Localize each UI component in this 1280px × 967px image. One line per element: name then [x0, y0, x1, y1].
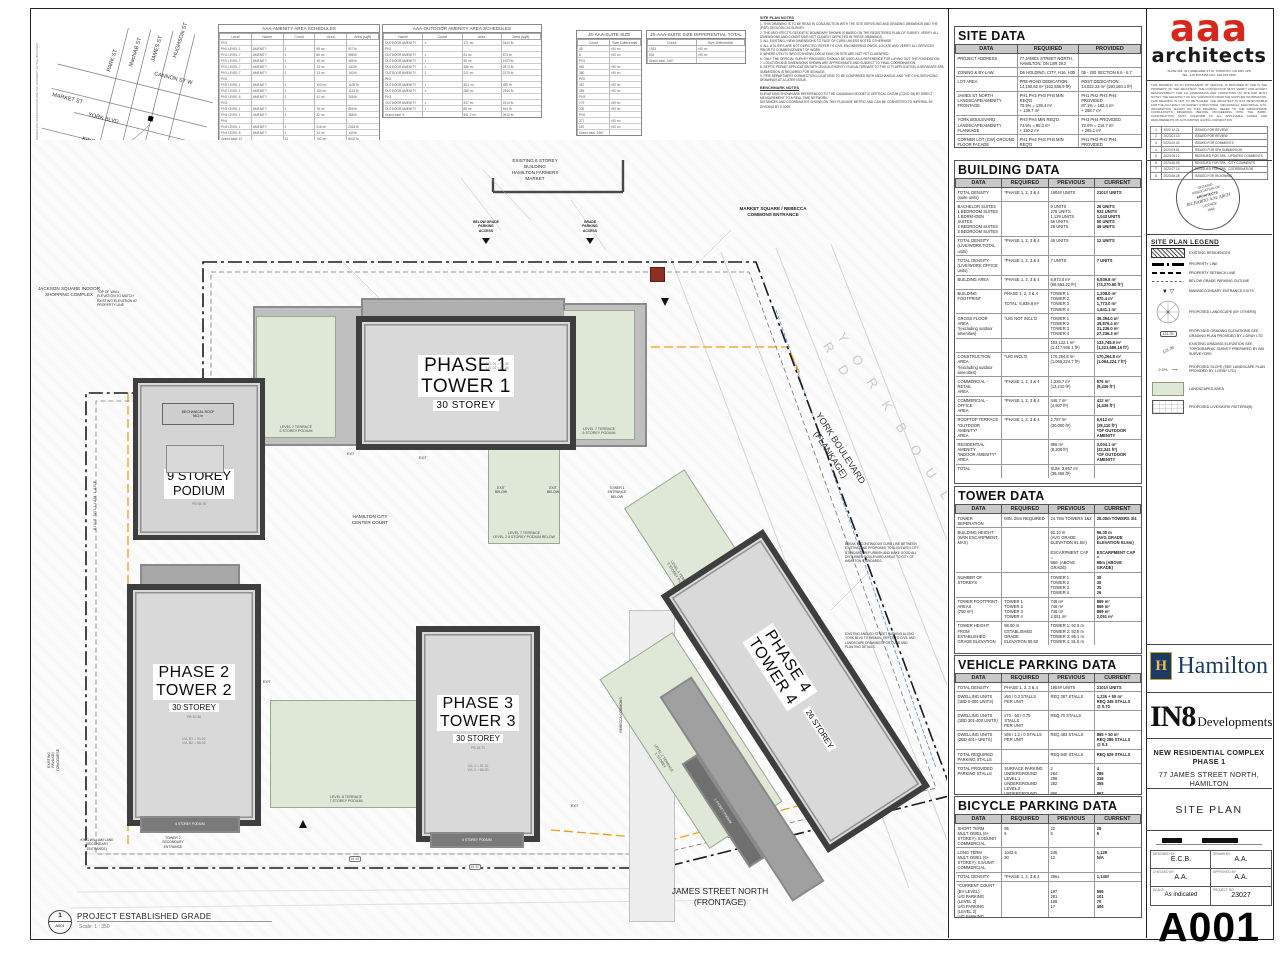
- seal-line: 7946: [1207, 206, 1215, 212]
- podium-strip-label: 6 STOREY PODIUM: [175, 822, 204, 826]
- project-no-value: 23027: [1213, 892, 1269, 899]
- plan-note-right-2: EXISTING ANGLED STREET PARKING ALONG YOR…: [845, 632, 923, 649]
- legend-label: MAIN/SECONDARY ENTRANCE EXITS: [1189, 289, 1268, 294]
- terrace-central: LEVEL 8 TERRACE 7 STOREY PODIUM: [270, 700, 422, 808]
- building-data-table: DATAREQUIREDPREVIOUSCURRENTTOTAL DENSITY…: [955, 178, 1141, 478]
- firm-disclaimer: THIS DRAWING, AS AN INSTRUMENT OF SERVIC…: [1151, 84, 1267, 123]
- hamilton-emblem-icon: H: [1150, 652, 1172, 680]
- street-james: JAMES ST: [150, 35, 164, 63]
- tower2-podium-north: [140, 564, 240, 586]
- tower1-building: PHASE 1 TOWER 1 30 STOREY: [356, 316, 576, 450]
- market-square-label: MARKET SQUARE / REBECCA COMMONS ENTRANCE: [733, 206, 813, 218]
- top-of-wall-note: TOP OF WALL ELEVATION TO MATCH EXISTING …: [97, 290, 169, 308]
- setback-line-swatch: [1151, 272, 1185, 274]
- tower2-levels-note: LVL B1 = 91.02 LVL B2 = 86.02: [182, 737, 205, 746]
- benchmark-notes-lines: ELEVATIONS SHOWN ARE REFERENCED TO THE C…: [760, 92, 944, 109]
- phase2-label: PHASE 2 TOWER 2: [153, 664, 235, 700]
- king-william-lane-label: KING WILLIAM LANE: [93, 470, 97, 540]
- drawn-by-value: A.A.: [1213, 856, 1269, 863]
- legend-label: PROPOSED GRADING ELEVATIONS SEE GRADING …: [1189, 329, 1268, 338]
- phase2-storey-label: 30 STOREY: [169, 703, 219, 712]
- project-no-cell: PROJECT NO: 23027: [1210, 886, 1272, 906]
- site-plan-legend: SITE PLAN LEGEND EXISTING RESIDENCES PRO…: [1151, 239, 1268, 418]
- scale-cell: SCALE: As indicated: [1150, 886, 1212, 906]
- tower3-building: PHASE 3 TOWER 3 30 STOREY PB 16.71 LVL 1…: [416, 626, 540, 842]
- jackson-square-label: JACKSON SQUARE INDOOR SHOPPING COMPLEX: [33, 286, 105, 298]
- callout-number: 1: [49, 911, 71, 922]
- scale-bar-segment: [1162, 838, 1182, 843]
- terrace-label: LEVEL 7 TERRACE 6 STOREY PODIUM: [279, 425, 312, 433]
- phase4-storey-label: 26 STOREY: [803, 705, 838, 752]
- street-macnab: MacNAB ST: [128, 36, 143, 67]
- below-grade-parking-label: BELOW GRADE PARKING ACCESS: [465, 220, 507, 233]
- exit-label: EXIT: [419, 456, 427, 460]
- street-park: PARK ST: [106, 48, 119, 72]
- approved-by-cell: APPROVED BY: A.A.: [1210, 868, 1272, 888]
- suite-diff-title: JS-AAA-SUITE SIZE DIFFERENTIAL TOTAL: [647, 31, 745, 39]
- suite-size-title: JS-AAA-SUITE SIZE: [577, 31, 641, 39]
- vehicle-parking-table: DATAREQUIREDPREVIOUSCURRENTTOTAL DENSITY…: [955, 673, 1141, 795]
- terrace-label: LEVEL 7 TERRACE 6 STOREY PODIUM: [582, 427, 615, 435]
- terrace-west-of-tower1: LEVEL 7 TERRACE 6 STOREY PODIUM: [256, 316, 336, 438]
- aaa-logo: aaa: [1150, 14, 1268, 44]
- farmers-market-label: EXISTING 6 STOREY BUILDING HAMILTON FARM…: [493, 158, 577, 182]
- tower-data-table: DATAREQUIREDPREVIOUSCURRENTTOWER SEPERAT…: [955, 504, 1141, 645]
- tower1-entrance-label: TOWER 1 ENTRANCE BELOW: [597, 486, 637, 499]
- suite-size-schedule: JS-AAA-SUITE SIZE CountSize Differential…: [576, 30, 642, 136]
- designed-by-cell: DESIGNED BY: E.C.B.: [1150, 850, 1212, 870]
- exit-below-label: EXIT BELOW: [487, 486, 515, 495]
- sheet-title: SITE PLAN: [1150, 804, 1268, 816]
- grade-tag: 91.45: [349, 856, 361, 862]
- tower2-building: PHASE 2 TOWER 2 30 STOREY PB 10.36 LVL B…: [127, 584, 261, 826]
- detail-callout: 1 A001: [48, 910, 72, 934]
- tower3-podium-south: 6 STOREY PODIUM: [430, 832, 524, 848]
- building-data-section: BUILDING DATA DATAREQUIREDPREVIOUSCURREN…: [954, 160, 1142, 484]
- legend-label: PROPOSED SLOPE (SEE LANDSCAPE PLAN PROVI…: [1189, 365, 1268, 374]
- street-york: YORK BLVD: [88, 112, 120, 125]
- firm-address: SUITE 501, 317 ADELAIDE ST W, TORONTO, O…: [1150, 69, 1268, 78]
- hamilton-logo-block: H Hamilton: [1150, 652, 1268, 680]
- outdoor-amenity-schedule-title: AAA-OUTDOOR AMENITY AREA SCHEDULES: [383, 25, 541, 33]
- podium-grade: PB 98.76: [192, 502, 206, 506]
- legend-title: SITE PLAN LEGEND: [1151, 239, 1268, 246]
- podium-strip-label: 6 STOREY PODIUM: [462, 838, 491, 842]
- approved-by-value: A.A.: [1213, 874, 1269, 881]
- entrance-exits-icon: ▼ ▽: [1151, 288, 1185, 295]
- amenity-schedule-title: AAA-AMENITY AREA SCHEDULES: [219, 25, 379, 33]
- existing-residences-swatch: [1151, 248, 1185, 258]
- parking-access-arrow: [586, 238, 594, 244]
- site-plan-notes-lines: 1. THIS DRAWING IS TO BE READ IN CONJUNC…: [760, 22, 944, 82]
- legend-label: PROPOSED LANDSCAPE (BY OTHERS): [1189, 310, 1268, 315]
- data-tables-column: SITE DATA DATAREQUIREDPROVIDEDPROJECT AD…: [948, 8, 1146, 938]
- legend-label: BELOW GRADE PARKING OUTLINE: [1189, 279, 1268, 284]
- plan-note-right-1: BREAK IN CONTINUOUS CURB LINE BETWEEN EX…: [845, 542, 923, 564]
- parking-outline-swatch: [1151, 281, 1185, 282]
- slope-icon: 2.0% ⟶: [1151, 360, 1185, 378]
- rebecca-commons-label: REBECCA COMMONS: [619, 680, 623, 750]
- sheet-number: A001: [1146, 904, 1272, 951]
- amenity-schedule-table: LevelNameCountAreaArea (sqft)PH1PH1 LEVE…: [219, 33, 379, 141]
- firm-logo-block: aaa architects SUITE 501, 317 ADELAIDE S…: [1150, 14, 1268, 77]
- phase3-storey-label: 30 STOREY: [453, 734, 503, 743]
- utility-block: [650, 267, 665, 282]
- james-street-label: JAMES STREET NORTH (FRONTAGE): [640, 886, 800, 908]
- checked-by-cell: CHECKED BY: A.A.: [1150, 868, 1212, 888]
- bicycle-parking-section: BICYCLE PARKING DATA DATAREQUIREDPREVIOU…: [954, 796, 1142, 918]
- grade-parking-label: GRADE PARKING ACCESS: [571, 220, 609, 233]
- tower2-podium-south: 6 STOREY PODIUM: [140, 816, 240, 833]
- benchmark-notes-title: BENCHMARK NOTES: [760, 86, 944, 91]
- site-plan-notes: SITE PLAN NOTES 1. THIS DRAWING IS TO BE…: [760, 16, 944, 109]
- street-market: MARKET ST: [52, 92, 85, 106]
- hamilton-wordmark: Hamilton: [1177, 653, 1268, 680]
- site-data-section: SITE DATA DATAREQUIREDPROVIDEDPROJECT AD…: [954, 26, 1142, 148]
- site-plan-notes-title: SITE PLAN NOTES: [760, 16, 794, 20]
- nine-storey-podium: MECHANICAL ROOF 98.2 m 9 STOREY PODIUM P…: [133, 378, 265, 540]
- exit-below-label: EXIT BELOW: [539, 486, 567, 495]
- parking-access-arrow: [482, 238, 490, 244]
- legend-label: LANDSCAPED AREA: [1189, 387, 1268, 392]
- legend-label: PROPERTY SETBACK LINE: [1189, 271, 1268, 276]
- tower2-grade: PB 10.36: [187, 715, 201, 719]
- in8-wordmark: IN8: [1150, 700, 1195, 733]
- tower3-grade: PB 16.71: [471, 746, 485, 750]
- outdoor-amenity-schedule-table: NameCountAreaArea (sqft)OUTDOOR AMENITY1…: [383, 33, 541, 117]
- site-data-title: SITE DATA: [955, 27, 1141, 44]
- outdoor-amenity-schedule: AAA-OUTDOOR AMENITY AREA SCHEDULES NameC…: [382, 24, 542, 118]
- mechanical-roof-label: MECHANICAL ROOF 98.2 m: [182, 410, 215, 419]
- street-hughson: HUGHSON ST: [172, 21, 189, 58]
- site-data-table: DATAREQUIREDPROVIDEDPROJECT ADDRESS77 JA…: [955, 44, 1141, 148]
- phase4-label: PHASE 4 TOWER 4: [742, 623, 817, 711]
- tower-data-section: TOWER DATA DATAREQUIREDPREVIOUSCURRENTTO…: [954, 486, 1142, 654]
- existing-grade-icon: 121.35: [1151, 347, 1185, 352]
- podium-label: 9 STOREY PODIUM: [164, 469, 234, 499]
- legend-label: EXISTING GRADING ELEVATION SEE TOPOGRAPH…: [1189, 342, 1268, 356]
- phase1-storey-label: 30 STOREY: [433, 400, 498, 411]
- established-grade-scale: Scale: 1 : 350: [79, 924, 110, 930]
- designed-by-value: E.C.B.: [1153, 856, 1209, 863]
- exit-label: EXIT: [347, 452, 355, 456]
- grade-tag: 91.30: [469, 864, 481, 870]
- tower2-secondary-entrance-label: TOWER 2 SECONDARY ENTRANCE: [147, 836, 199, 849]
- building-data-title: BUILDING DATA: [955, 161, 1141, 178]
- in8-developments: Developments: [1197, 714, 1272, 729]
- project-title: NEW RESIDENTIAL COMPLEX PHASE 1: [1150, 748, 1268, 766]
- scale-value: As indicated: [1153, 892, 1209, 898]
- amenity-schedule: AAA-AMENITY AREA SCHEDULES LevelNameCoun…: [218, 24, 380, 142]
- suite-size-table: CountSize Differential39<90 m²8>90 m²PH1…: [577, 39, 641, 135]
- king-william-secondary-label: KING WILLIAM LANE (SECONDARY ENTRANCE): [69, 838, 125, 851]
- proposed-grade-tag-icon: 121.35: [1151, 331, 1185, 337]
- terrace-label: LEVEL 7 TERRACE LEVEL 2 6 STOREY PODIUM …: [493, 531, 555, 539]
- tower3-levels-note: LVL 1 = 91.32 LVL 2 = 86.00: [468, 764, 489, 773]
- tower-data-title: TOWER DATA: [955, 487, 1141, 504]
- livework-pattern-swatch: [1151, 400, 1185, 414]
- site-plan-canvas: LEVEL 7 TERRACE 6 STOREY PODIUM LEVEL 7 …: [31, 140, 947, 937]
- hamilton-city-court-label: HAMILTON CITY CENTER COURT: [339, 514, 401, 526]
- terrace-label: LEVEL 8 TERRACE 7 STOREY PODIUM: [329, 795, 362, 803]
- exit-label: EXIT: [571, 804, 579, 808]
- exit-label: EXIT: [263, 680, 271, 684]
- property-line-swatch: [1151, 263, 1185, 265]
- suite-diff-table: CountSize Differential1933<90 m²534>90 m…: [647, 39, 745, 63]
- title-block-column: aaa architects SUITE 501, 317 ADELAIDE S…: [1146, 8, 1272, 938]
- project-address: 77 JAMES STREET NORTH, HAMILTON: [1150, 770, 1268, 788]
- bicycle-parking-table: DATAREQUIREDPREVIOUSCURRENTSHORT TERMMUL…: [955, 814, 1141, 918]
- drawn-by-cell: DRAWN BY: A.A.: [1210, 850, 1272, 870]
- legend-label: PROPERTY LINE: [1189, 262, 1268, 267]
- suite-diff-schedule: JS-AAA-SUITE SIZE DIFFERENTIAL TOTAL Cou…: [646, 30, 746, 64]
- bicycle-parking-title: BICYCLE PARKING DATA: [955, 797, 1141, 814]
- landscape-tree-icon: [1151, 299, 1185, 325]
- existing-pavilion-label: EXISTING PAVILION CONCOURSE: [47, 730, 60, 790]
- scale-bar-segment: [1202, 838, 1238, 843]
- vehicle-parking-section: VEHICLE PARKING DATA DATAREQUIREDPREVIOU…: [954, 655, 1142, 795]
- aaa-architects-wordmark: architects: [1150, 44, 1268, 67]
- checked-by-value: A.A.: [1153, 874, 1209, 881]
- in8-logo-block: IN8Developments: [1150, 700, 1268, 734]
- tower1-levels-note: LVL 01 = 91.30 LVL 02 = 86.80: [486, 362, 509, 371]
- callout-sheet: A001: [49, 922, 71, 929]
- established-grade-title: PROJECT ESTABLISHED GRADE: [77, 912, 272, 922]
- landscaped-area-swatch: [1151, 382, 1185, 396]
- vehicle-parking-title: VEHICLE PARKING DATA: [955, 656, 1141, 673]
- legend-label: PROPOSED LIVE/WORK PATTERN(S): [1189, 405, 1268, 410]
- phase3-label: PHASE 3 TOWER 3: [437, 695, 519, 731]
- legend-label: EXISTING RESIDENCES: [1189, 251, 1268, 256]
